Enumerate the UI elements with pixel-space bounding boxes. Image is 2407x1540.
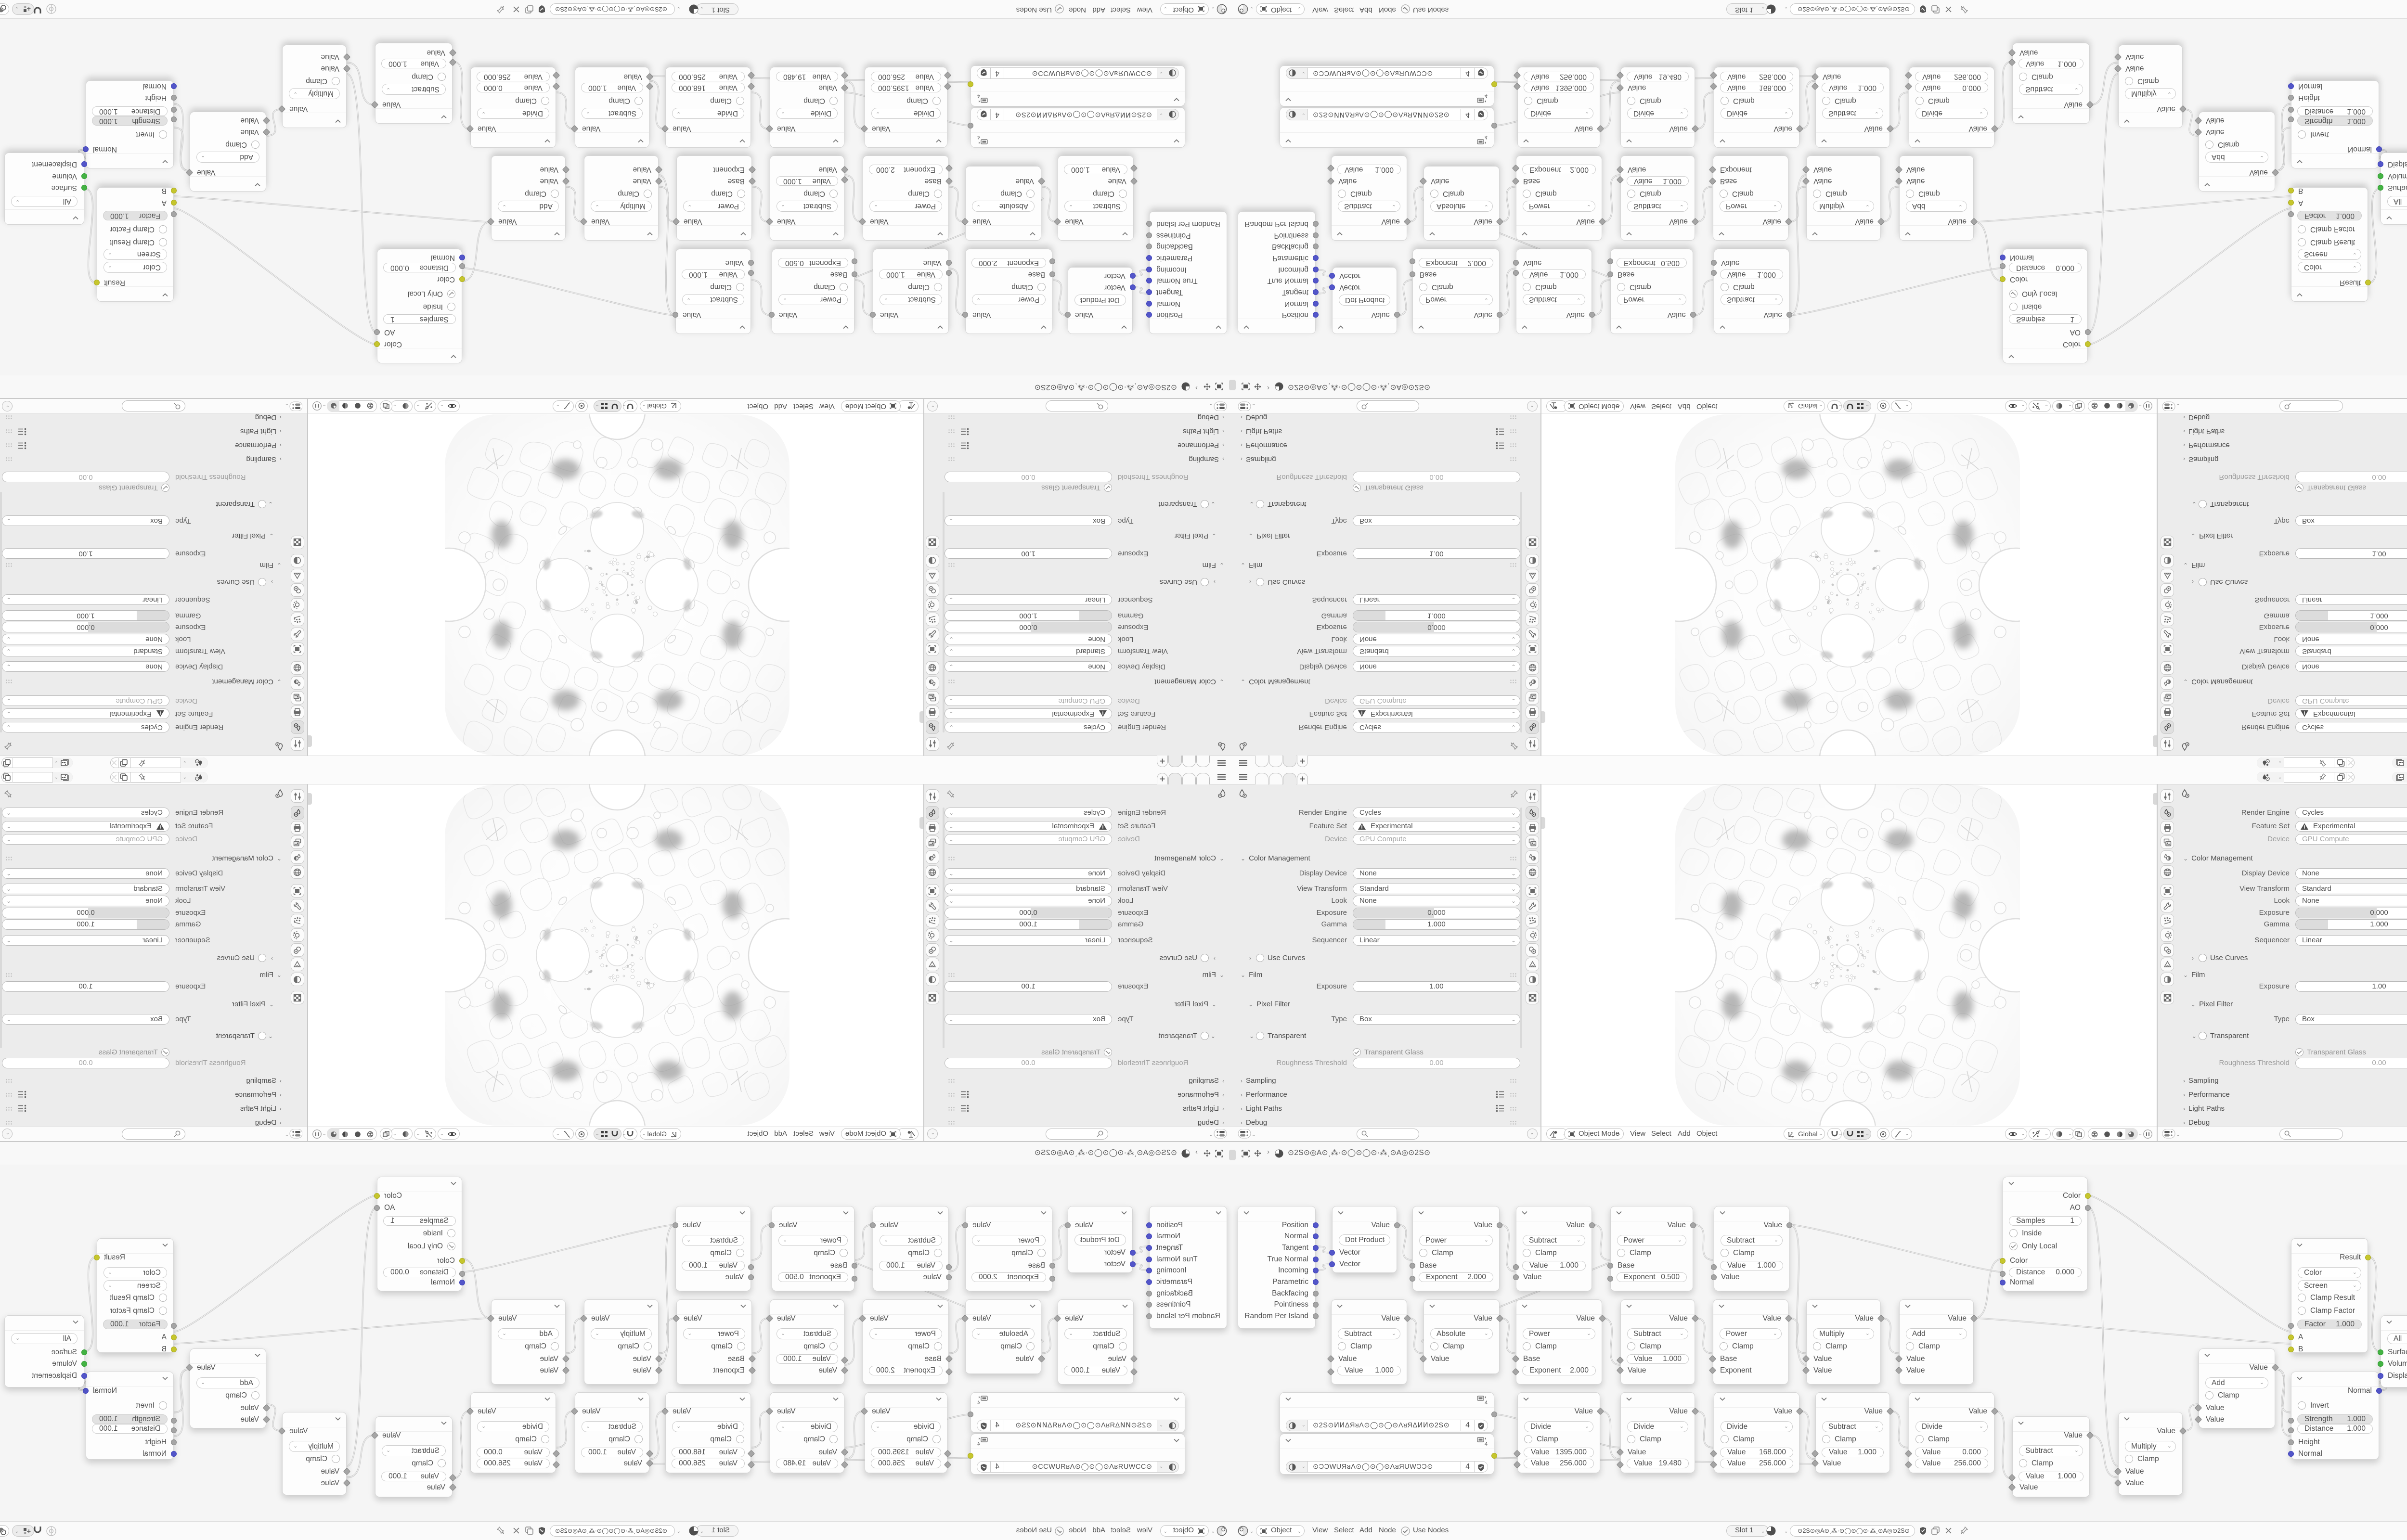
svg-text:4: 4 [977, 1400, 980, 1405]
svg-text:4: 4 [977, 94, 980, 99]
svg-text:4: 4 [1485, 135, 1488, 140]
svg-text:4: 4 [1485, 94, 1488, 99]
svg-text:4: 4 [1485, 1400, 1488, 1405]
svg-text:4: 4 [977, 135, 980, 140]
svg-text:4: 4 [977, 1441, 980, 1446]
svg-text:4: 4 [1485, 1441, 1488, 1446]
